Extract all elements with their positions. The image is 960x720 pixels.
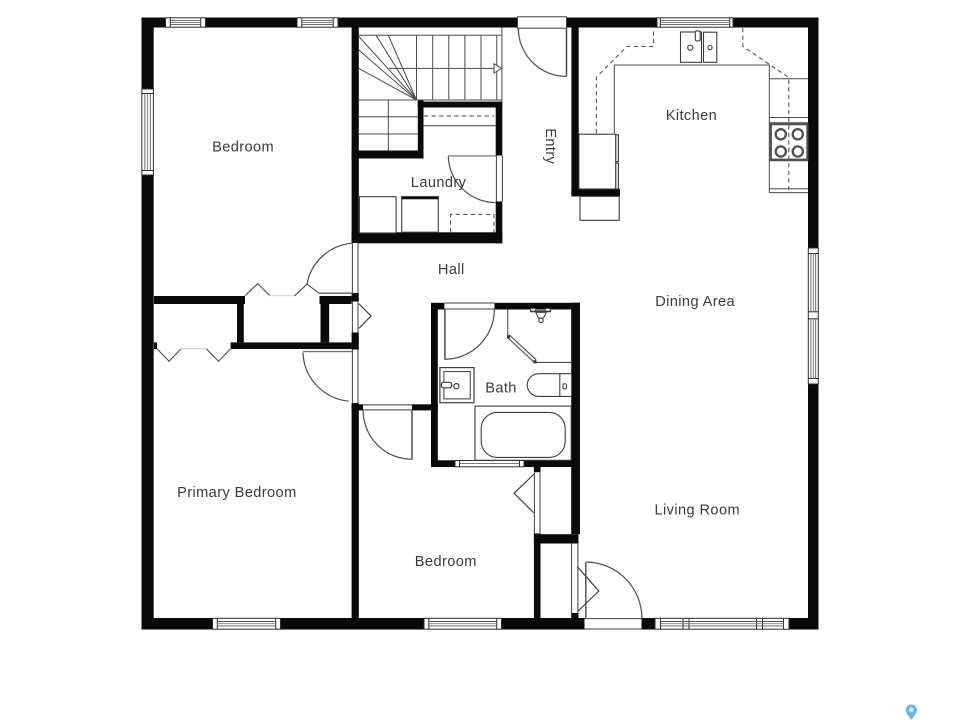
svg-text:Kitchen: Kitchen	[666, 108, 717, 124]
svg-text:Bedroom: Bedroom	[415, 554, 477, 570]
svg-text:Living Room: Living Room	[655, 502, 741, 518]
svg-text:Bedroom: Bedroom	[212, 139, 274, 155]
svg-text:Dining Area: Dining Area	[655, 294, 735, 310]
svg-text:Laundry: Laundry	[411, 175, 467, 191]
svg-text:Bath: Bath	[485, 380, 517, 396]
svg-text:Hall: Hall	[438, 262, 465, 278]
svg-text:Primary Bedroom: Primary Bedroom	[177, 485, 297, 501]
svg-text:Entry: Entry	[542, 128, 558, 164]
